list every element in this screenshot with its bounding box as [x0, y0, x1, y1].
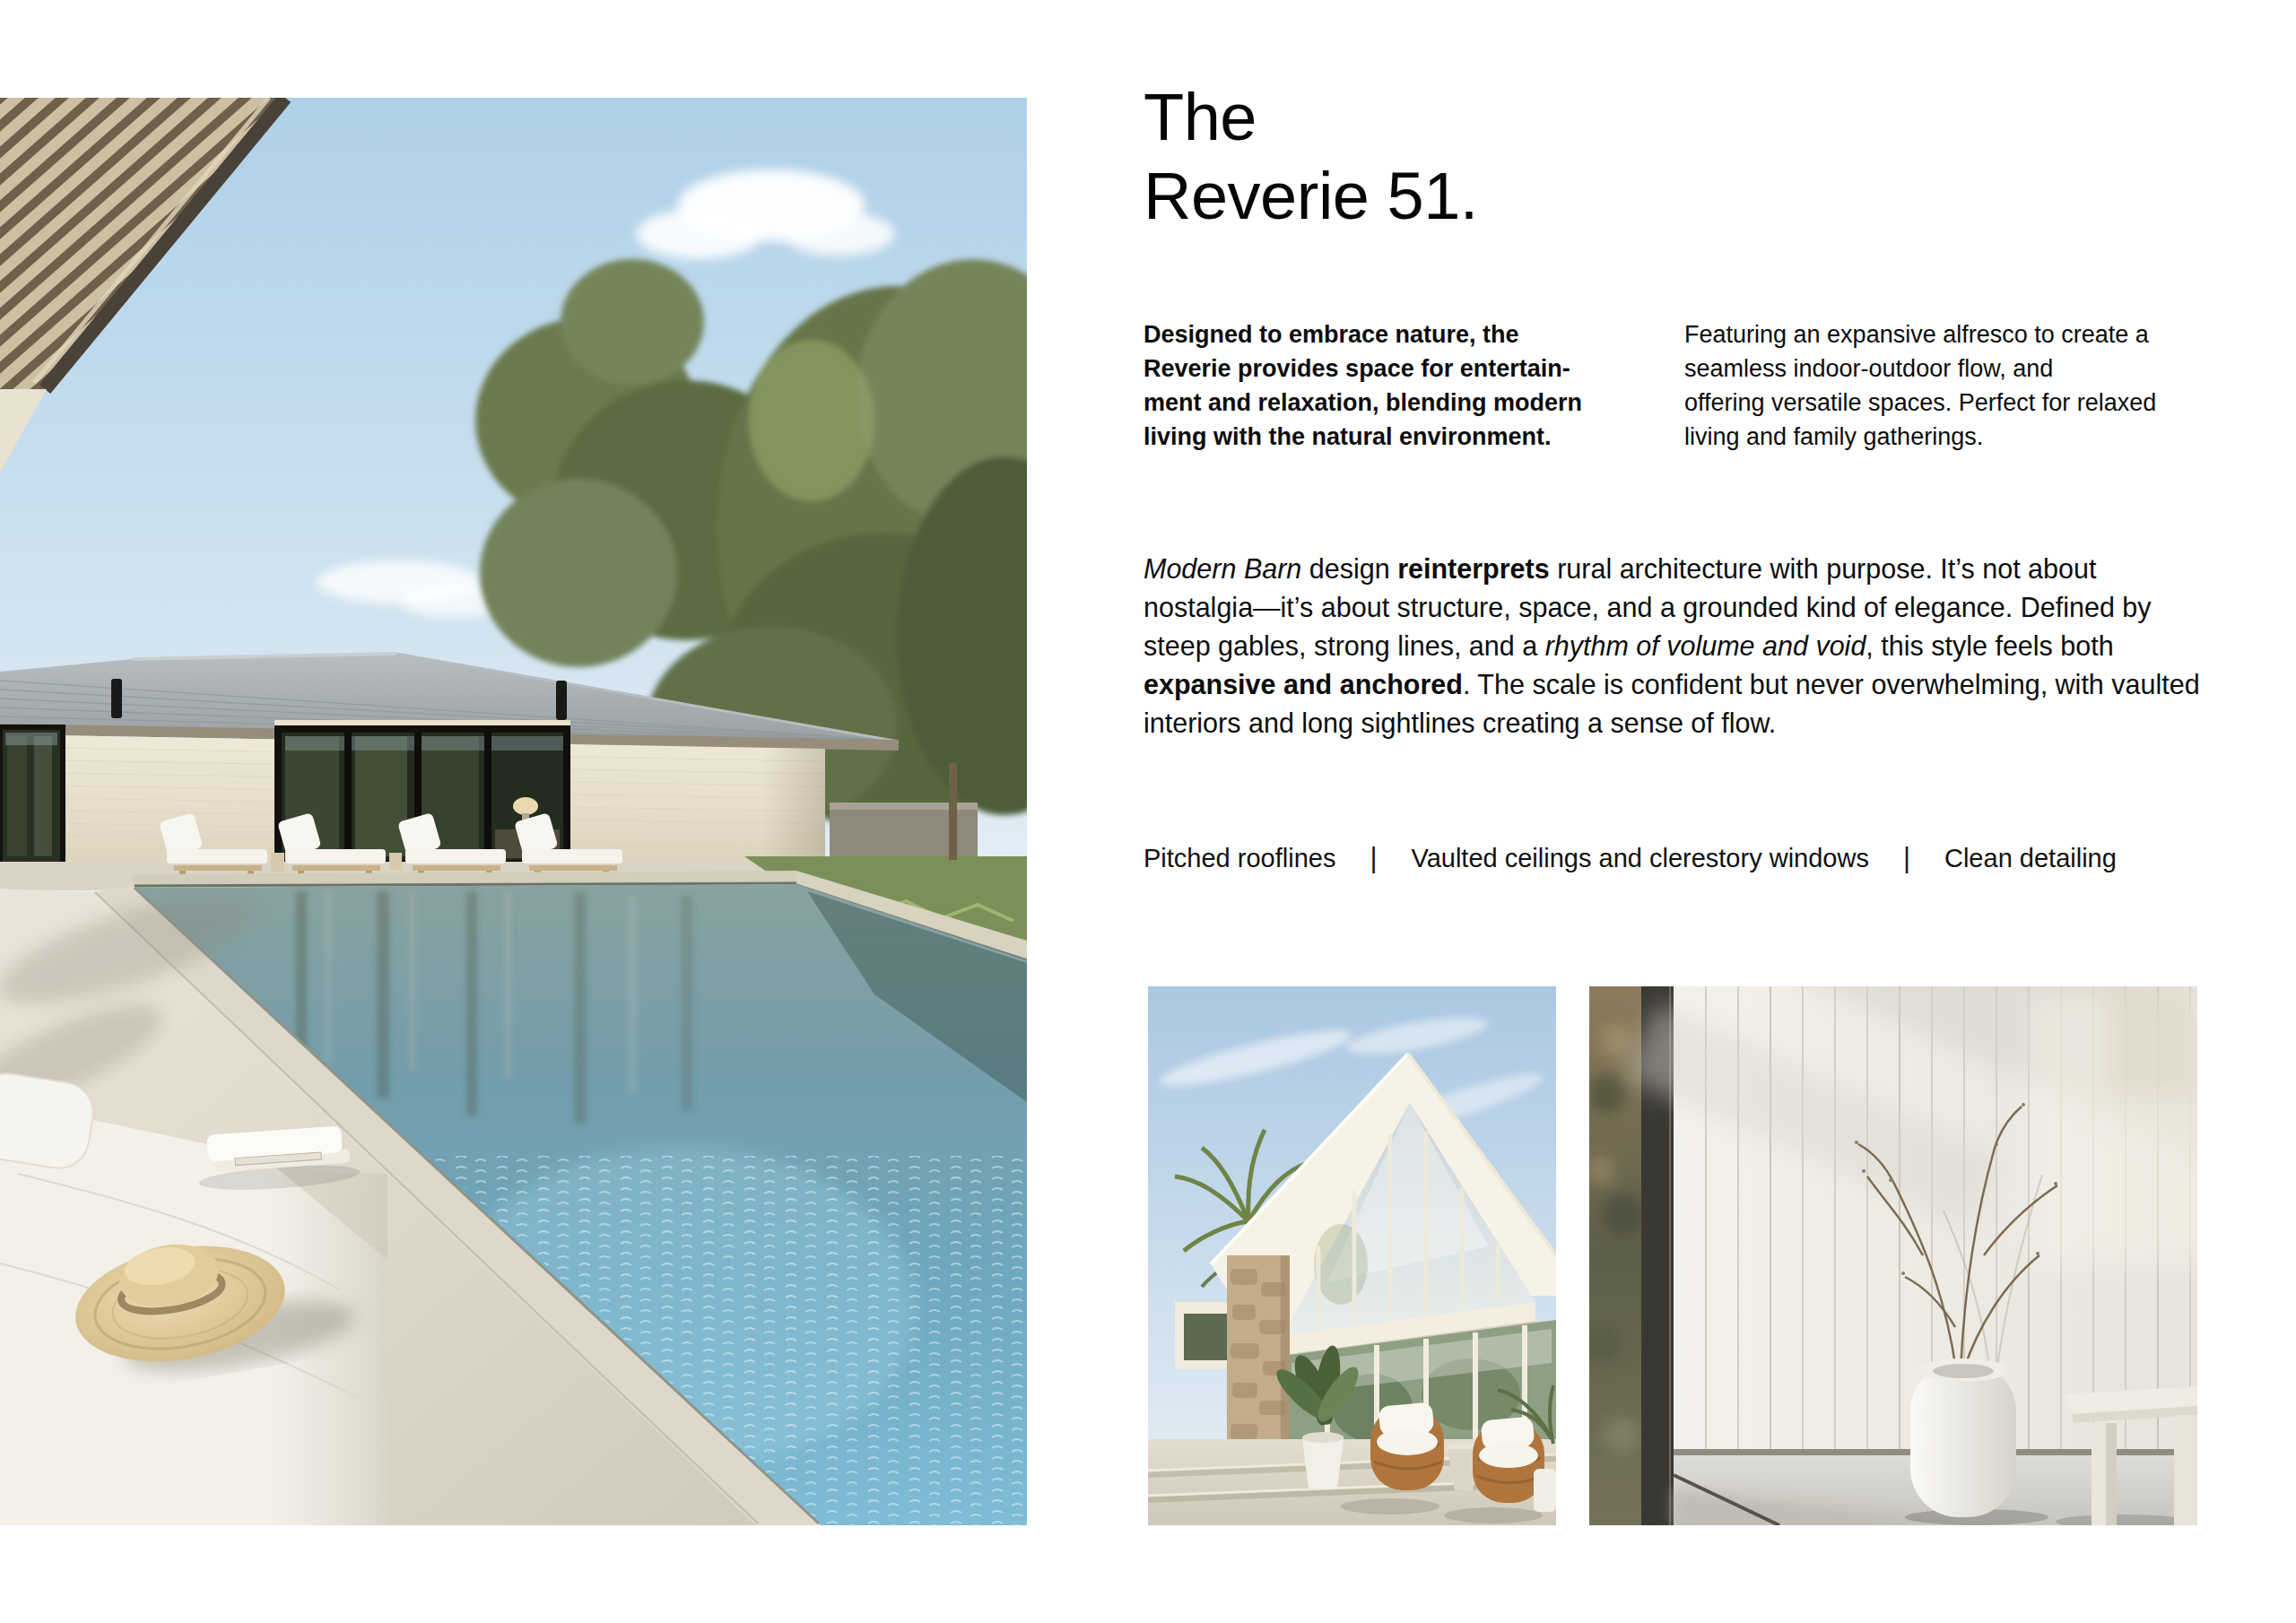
intro-regular-line: offering versatile spaces. Perfect for r…	[1684, 386, 2156, 420]
white-siding-photo	[1589, 986, 2197, 1525]
feature-divider: |	[1903, 843, 1910, 873]
modern-barn-photo-art	[1148, 986, 1556, 1525]
intro-bold-line: Reverie provides space for entertain-	[1144, 352, 1582, 386]
brochure-page: The Reverie 51. Designed to embrace natu…	[0, 0, 2296, 1623]
feature-list: Pitched rooflines | Vaulted ceilings and…	[1144, 843, 2151, 873]
page-title-line1: The	[1144, 78, 1478, 157]
intro-regular-line: living and family gatherings.	[1684, 420, 2156, 454]
body-paragraph-line: nostalgia—it’s about structure, space, a…	[1144, 588, 2200, 627]
intro-regular-column: Featuring an expansive alfresco to creat…	[1684, 317, 2156, 454]
hero-pool-photo-art	[0, 98, 1027, 1525]
white-siding-photo-art	[1589, 986, 2197, 1525]
italic-phrase: Modern Barn	[1144, 553, 1301, 584]
wall-sconce-right	[556, 681, 567, 720]
body-paragraph: Modern Barn design reinterprets rural ar…	[1144, 550, 2200, 742]
feature-vaulted-ceilings: Vaulted ceilings and clerestory windows	[1411, 843, 1868, 873]
body-paragraph-line: interiors and long sightlines creating a…	[1144, 704, 2200, 742]
intro-bold-line: living with the natural environment.	[1144, 420, 1582, 454]
bold-phrase: reinterprets	[1397, 553, 1550, 584]
feature-pitched-rooflines: Pitched rooflines	[1144, 843, 1335, 873]
intro-bold-line: ment and relaxation, blending modern	[1144, 386, 1582, 420]
intro-regular-line: seamless indoor-outdoor flow, and	[1684, 352, 2156, 386]
feature-clean-detailing: Clean detailing	[1944, 843, 2117, 873]
wall-sconce-left	[111, 679, 122, 718]
intro-bold-line: Designed to embrace nature, the	[1144, 317, 1582, 352]
hero-pool-photo	[0, 98, 1027, 1525]
page-title-line2: Reverie 51.	[1144, 157, 1478, 236]
left-window	[0, 727, 63, 865]
italic-phrase: rhythm of volume and void	[1545, 630, 1866, 661]
feature-divider: |	[1370, 843, 1377, 873]
body-paragraph-line: Modern Barn design reinterprets rural ar…	[1144, 550, 2200, 588]
bold-phrase: expansive and anchored	[1144, 669, 1463, 699]
page-title: The Reverie 51.	[1144, 78, 1478, 236]
body-paragraph-line: steep gables, strong lines, and a rhythm…	[1144, 627, 2200, 665]
intro-bold-column: Designed to embrace nature, the Reverie …	[1144, 317, 1582, 454]
modern-barn-photo	[1148, 986, 1556, 1525]
body-paragraph-line: expansive and anchored. The scale is con…	[1144, 665, 2200, 704]
intro-regular-line: Featuring an expansive alfresco to creat…	[1684, 317, 2156, 352]
